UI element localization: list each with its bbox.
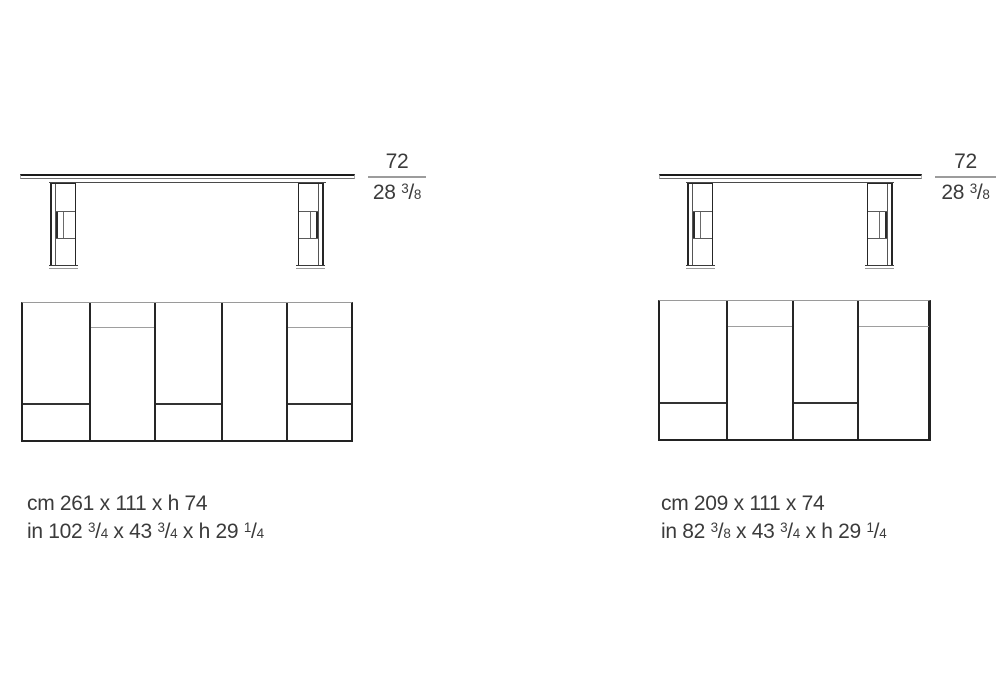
height-cm-value: 72 — [368, 149, 426, 175]
underframe-beam-right — [686, 181, 894, 183]
underframe-beam-left — [49, 181, 326, 183]
plan-divider — [726, 301, 728, 439]
table-leg — [867, 183, 893, 266]
plan-divider — [857, 301, 859, 439]
leg-base-plate — [686, 265, 715, 269]
plan-leaf-line — [859, 326, 929, 327]
tabletop-right — [659, 174, 922, 179]
caption-right-in: in 82 3/8 x 43 3/4 x h 29 1/4 — [661, 518, 886, 548]
plan-leaf-line — [288, 327, 351, 328]
tabletop-left — [20, 174, 355, 179]
caption-right: cm 209 x 111 x 74 in 82 3/8 x 43 3/4 x h… — [661, 490, 886, 548]
leg-recess-panel — [55, 211, 75, 239]
plan-leaf-line — [794, 402, 857, 404]
spec-sheet: 72 28 3/8 cm 261 x 111 x h 74 in 102 3/4… — [0, 0, 1000, 700]
leg-base-plate — [49, 265, 78, 269]
caption-right-cm: cm 209 x 111 x 74 — [661, 490, 886, 518]
caption-left-in: in 102 3/4 x 43 3/4 x h 29 1/4 — [27, 518, 264, 548]
leg-panel-line — [63, 212, 64, 238]
plan-leaf-line — [23, 403, 89, 405]
caption-left: cm 261 x 111 x h 74 in 102 3/4 x 43 3/4 … — [27, 490, 264, 548]
leg-panel-line — [316, 212, 318, 238]
height-dimension-right: 72 28 3/8 — [935, 149, 996, 206]
height-dimension-left: 72 28 3/8 — [368, 149, 426, 206]
leg-recess-panel — [299, 211, 319, 239]
plan-leaf-line — [91, 327, 154, 328]
plan-leaf-line — [288, 403, 351, 405]
dimension-line — [368, 176, 426, 178]
leg-panel-line — [879, 212, 880, 238]
leg-panel-line — [56, 212, 58, 238]
dimension-line — [935, 176, 996, 178]
leg-panel-line — [693, 212, 695, 238]
plan-divider — [154, 303, 156, 440]
table-leg — [687, 183, 713, 266]
plan-leaf-line — [156, 403, 221, 405]
table-leg — [50, 183, 76, 266]
plan-divider — [792, 301, 794, 439]
plan-view-left — [21, 302, 353, 442]
caption-left-cm: cm 261 x 111 x h 74 — [27, 490, 264, 518]
table-leg — [298, 183, 324, 266]
plan-divider — [89, 303, 91, 440]
leg-base-plate — [296, 265, 325, 269]
height-in-value: 28 3/8 — [935, 180, 996, 206]
height-cm-value: 72 — [935, 149, 996, 175]
plan-view-right — [658, 300, 931, 441]
leg-recess-panel — [692, 211, 712, 239]
leg-base-plate — [865, 265, 894, 269]
height-in-value: 28 3/8 — [368, 180, 426, 206]
plan-leaf-line — [660, 402, 726, 404]
plan-leaf-line — [728, 326, 792, 327]
leg-panel-line — [700, 212, 701, 238]
plan-divider — [221, 303, 223, 440]
plan-divider — [286, 303, 288, 440]
leg-panel-line — [310, 212, 311, 238]
leg-panel-line — [885, 212, 887, 238]
leg-recess-panel — [868, 211, 888, 239]
